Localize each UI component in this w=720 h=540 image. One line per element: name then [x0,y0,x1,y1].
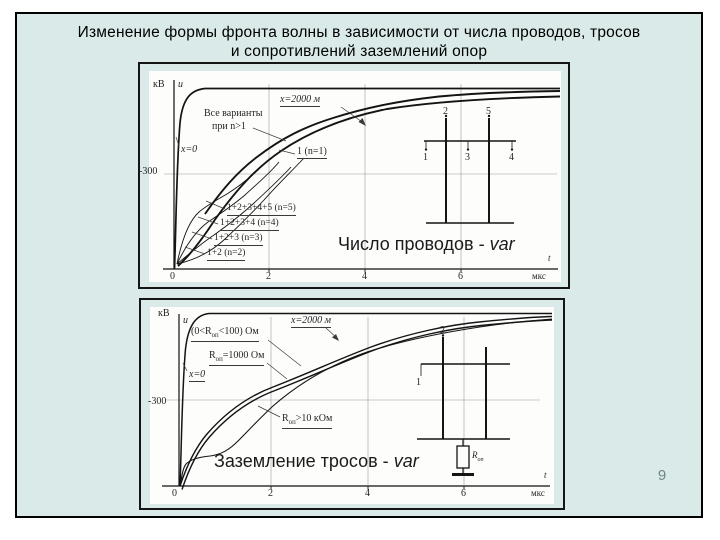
xtick-6: 6 [461,489,466,499]
tower-wire-2: 2 [443,107,448,117]
label-n1: 1 (n=1) [297,147,327,159]
label-n4: 1+2+3+4 (n=4) [220,219,279,231]
tower-sketch [417,334,510,474]
figure1-caption-text: Число проводов - [338,234,490,254]
label-n2: 1+2 (n=2) [207,249,245,261]
xtick-0: 0 [170,272,175,282]
x-axis-var: t [548,254,551,263]
slide-title: Изменение формы фронта волны в зависимос… [17,24,701,62]
tower-wire-5: 5 [486,107,491,117]
slide-title-line1: Изменение формы фронта волны в зависимос… [17,24,701,43]
leader-lines [176,107,366,254]
tower-wire-1: 1 [416,378,421,388]
tower-wire-4: 4 [509,153,514,163]
figure-ground-wire-plot: Заземление тросов - var кВux=2000 м(0<Rо… [150,307,554,504]
figure2-caption-text: Заземление тросов - [214,451,394,471]
label-r-1000: Rоп=1000 Ом [209,351,264,366]
figure2-caption: Заземление тросов - var [214,452,419,470]
xtick-2: 2 [268,489,273,499]
x-axis-unit: мкс [532,272,546,281]
x-axis-var: t [544,471,547,480]
slide-title-line2: и сопротивлений заземлений опор [17,43,701,62]
label-r-10k: Rоп>10 кОм [282,414,332,429]
y-axis-var: u [178,80,183,90]
label-x2000: x=2000 м [291,316,331,328]
y-axis-var: u [183,316,188,326]
x-axis-unit: мкс [531,489,545,498]
tower-wire-2: 2 [440,326,445,336]
ytick-minus300: -300 [139,167,157,177]
label-x0: x=0 [181,145,197,155]
figure1-caption: Число проводов - var [338,235,515,253]
label-all-variants-line2: при n>1 [212,122,246,132]
xtick-4: 4 [365,489,370,499]
page-number: 9 [642,467,682,484]
label-r-0-100: (0<Rоп<100) Ом [191,327,259,342]
xtick-6: 6 [458,272,463,282]
label-n3: 1+2+3 (n=3) [214,234,263,246]
tower-wire-3: 3 [465,153,470,163]
figure1-caption-var: var [490,234,515,254]
tower-resistor-label: Rоп [472,451,484,463]
ytick-minus300: -300 [148,397,166,407]
figure-wire-count-frame: Число проводов - var кВux=2000 мВсе вари… [138,62,570,289]
tower-sketch [424,115,516,223]
tower-wire-1: 1 [423,153,428,163]
label-all-variants-line1: Все варианты [204,109,262,119]
figure-ground-wire-frame: Заземление тросов - var кВux=2000 м(0<Rо… [139,298,565,510]
resistor-body [457,446,469,468]
xtick-2: 2 [266,272,271,282]
label-n5: 1+2+3+4+5 (n=5) [227,204,296,216]
y-axis-unit: кВ [153,80,165,90]
y-axis-unit: кВ [158,309,170,319]
label-x0: x=0 [189,370,205,382]
figure-wire-count-plot: Число проводов - var кВux=2000 мВсе вари… [149,71,561,282]
xtick-4: 4 [362,272,367,282]
figure2-caption-var: var [394,451,419,471]
label-x2000: x=2000 м [280,95,320,107]
slide: Изменение формы фронта волны в зависимос… [15,12,703,518]
xtick-0: 0 [172,489,177,499]
